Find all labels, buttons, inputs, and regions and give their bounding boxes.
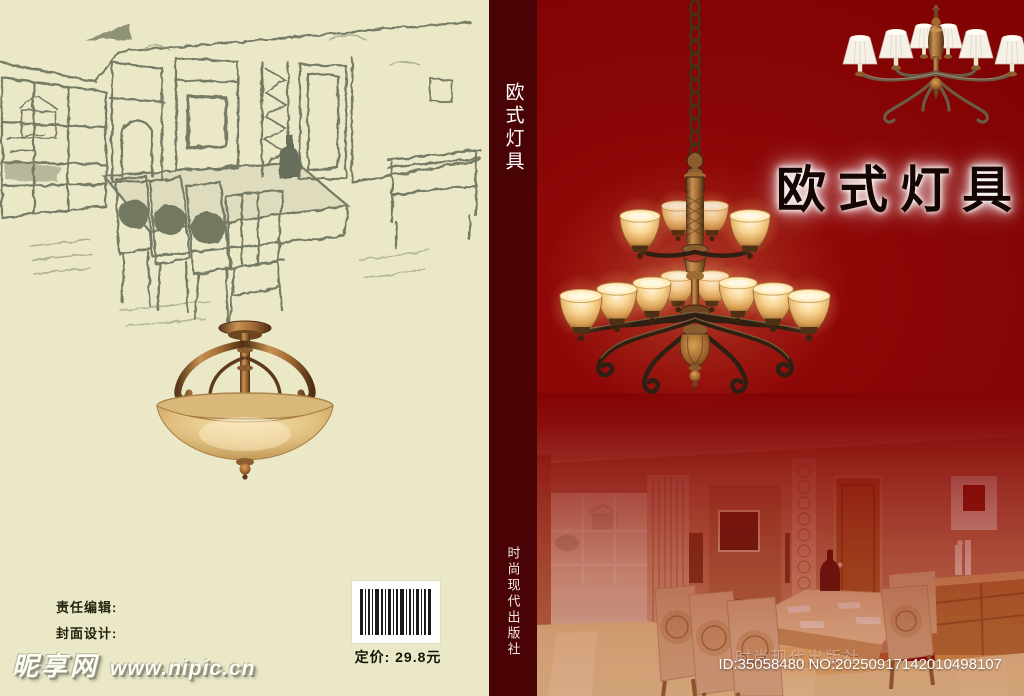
spine-publisher: 时尚现代出版社 [504,546,523,658]
dining-room-sketch-image [0,10,489,345]
stock-id-watermark: ID:35058480 NO:20250917142010498107 [718,656,1002,673]
front-cover: 欧式灯具 时尚现代出版社 ID:35058480 NO:202509171420… [537,0,1024,696]
barcode-bars [360,589,432,635]
spine-title: 欧式灯具 [500,82,527,174]
back-cover: 责任编辑: 封面设计: 定价: 29.8元 [0,0,489,696]
nipic-watermark: 昵享网 www.nipic.cn [12,646,255,683]
price-text: 定价: 29.8元 [348,647,448,667]
book-cover-design: 责任编辑: 封面设计: 定价: 29.8元 欧式灯具 时尚现代出版社 [0,0,1024,696]
nipic-site-name: 昵享网 [12,646,99,683]
nipic-site-url: www.nipic.cn [110,657,255,681]
credits-block: 责任编辑: 封面设计: [56,595,117,647]
chandelier-chain [691,1,700,159]
front-cover-title: 欧式灯具 [776,150,1024,222]
bowl-pendant-lamp-image [150,318,340,483]
editor-credit: 责任编辑: [56,595,117,621]
designer-credit: 封面设计: [56,621,117,647]
spine: 欧式灯具 时尚现代出版社 [489,0,537,696]
small-chandelier-image [838,2,1024,142]
barcode [352,581,440,643]
